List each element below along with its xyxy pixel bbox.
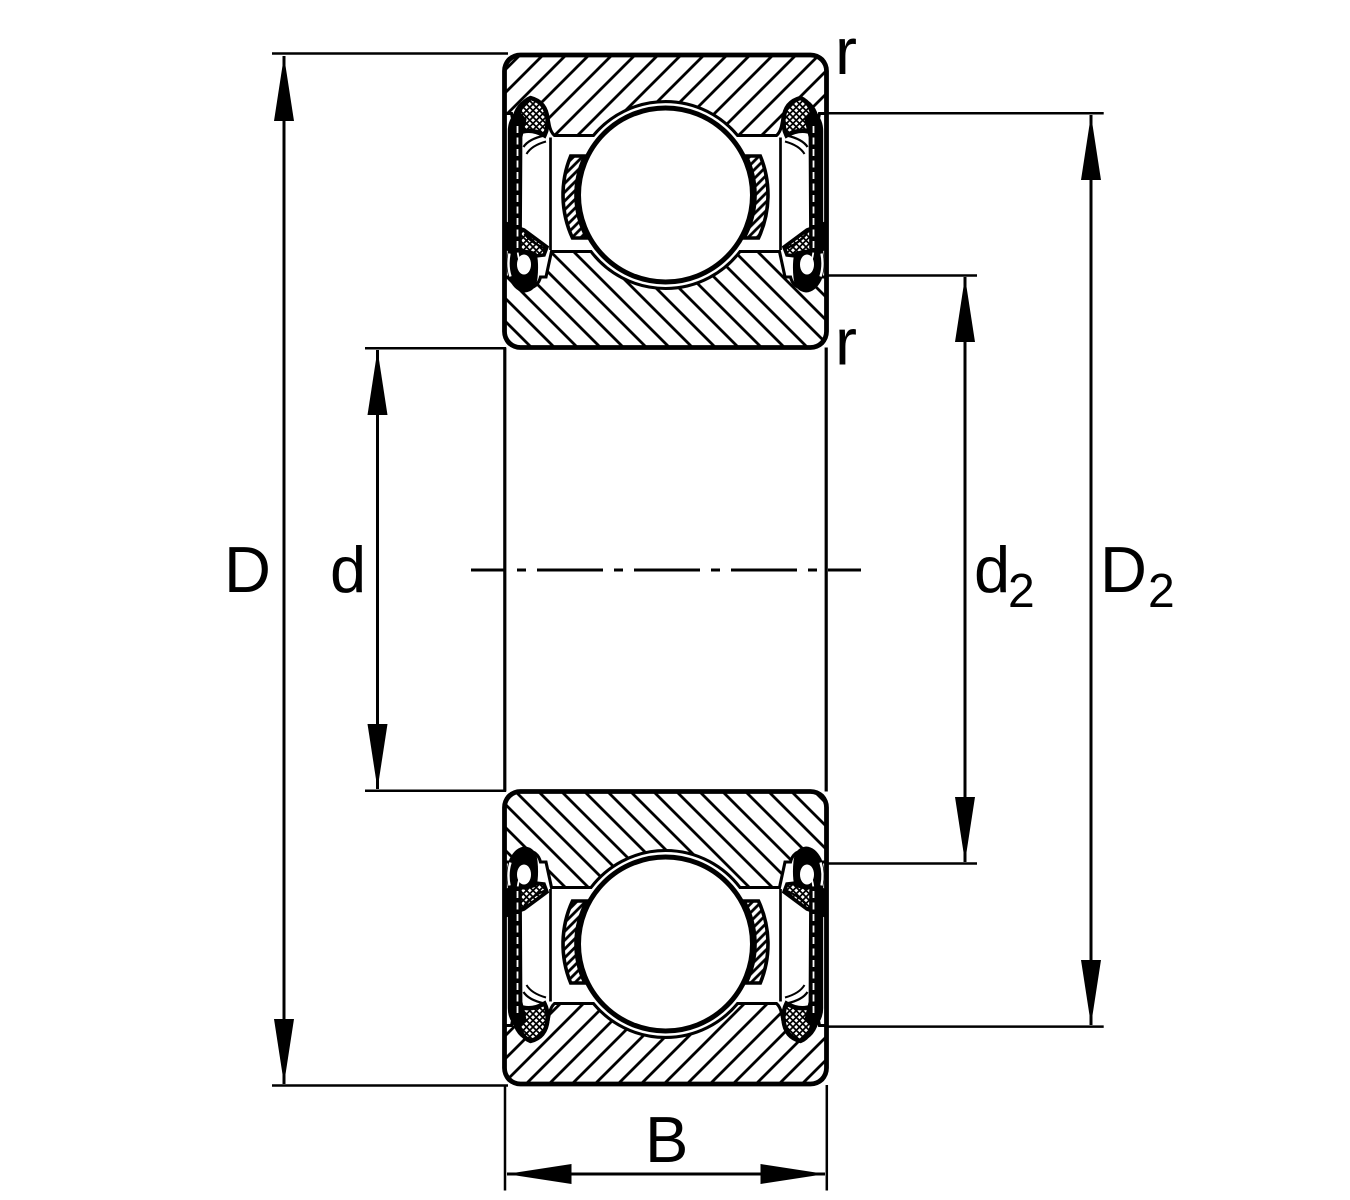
- svg-text:D: D: [1100, 533, 1147, 606]
- svg-text:2: 2: [1148, 565, 1175, 618]
- svg-text:d: d: [974, 533, 1010, 606]
- svg-text:d: d: [330, 533, 366, 606]
- svg-text:B: B: [645, 1103, 688, 1176]
- svg-text:r: r: [835, 305, 857, 379]
- svg-text:r: r: [835, 14, 857, 88]
- svg-text:2: 2: [1008, 565, 1035, 618]
- svg-text:D: D: [224, 533, 271, 606]
